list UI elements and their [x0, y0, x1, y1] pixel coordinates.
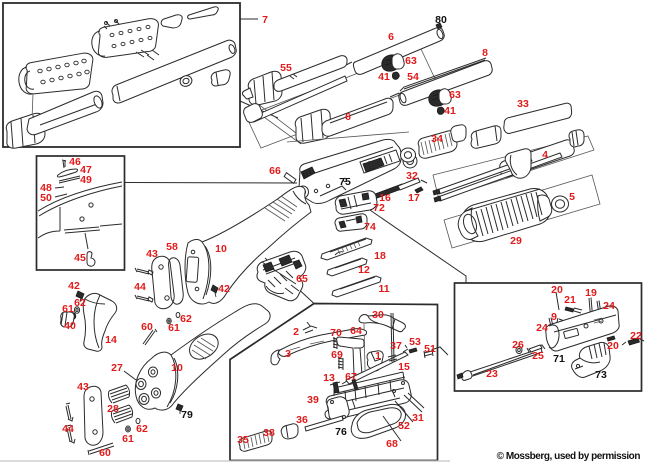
svg-text:54: 54	[407, 71, 419, 83]
svg-text:23: 23	[486, 368, 498, 380]
svg-text:28: 28	[107, 403, 119, 415]
svg-text:62: 62	[74, 297, 86, 309]
svg-text:6: 6	[345, 111, 351, 123]
svg-text:69: 69	[331, 349, 343, 361]
svg-text:20: 20	[551, 284, 563, 296]
svg-text:51: 51	[424, 343, 436, 355]
svg-text:39: 39	[307, 394, 319, 406]
svg-text:60: 60	[99, 447, 111, 459]
svg-text:15: 15	[398, 361, 410, 373]
svg-text:44: 44	[134, 281, 146, 293]
svg-text:9: 9	[551, 311, 557, 323]
svg-text:30: 30	[372, 309, 384, 321]
svg-text:5: 5	[569, 191, 575, 203]
svg-text:44: 44	[62, 423, 74, 435]
svg-text:60: 60	[141, 321, 153, 333]
svg-text:27: 27	[111, 362, 123, 374]
svg-text:63: 63	[405, 55, 417, 67]
svg-text:8: 8	[482, 47, 488, 59]
svg-text:67: 67	[345, 371, 357, 383]
svg-text:36: 36	[296, 414, 308, 426]
svg-text:70: 70	[330, 327, 342, 339]
svg-text:43: 43	[146, 248, 158, 260]
svg-text:19: 19	[585, 287, 597, 299]
svg-text:24: 24	[603, 300, 615, 312]
svg-text:11: 11	[378, 283, 389, 295]
svg-text:26: 26	[512, 339, 524, 351]
svg-text:61: 61	[122, 433, 134, 445]
svg-text:12: 12	[358, 264, 370, 276]
svg-text:75: 75	[339, 176, 351, 188]
svg-text:32: 32	[406, 170, 418, 182]
svg-text:80: 80	[435, 14, 447, 26]
svg-text:73: 73	[595, 369, 607, 381]
svg-text:17: 17	[408, 192, 420, 204]
svg-text:50: 50	[40, 192, 52, 204]
svg-text:41: 41	[378, 71, 390, 83]
svg-text:14: 14	[105, 334, 117, 346]
svg-text:64: 64	[350, 325, 362, 337]
svg-text:7: 7	[262, 14, 268, 26]
svg-text:55: 55	[280, 62, 292, 74]
svg-text:35: 35	[237, 434, 249, 446]
svg-text:79: 79	[181, 409, 193, 421]
svg-text:33: 33	[517, 98, 529, 110]
svg-text:20: 20	[607, 340, 619, 352]
svg-text:10: 10	[215, 243, 227, 255]
svg-text:76: 76	[335, 426, 347, 438]
svg-text:24: 24	[536, 322, 548, 334]
svg-text:61: 61	[168, 322, 180, 334]
svg-text:66: 66	[269, 165, 281, 177]
svg-text:58: 58	[166, 241, 178, 253]
svg-text:41: 41	[444, 105, 456, 117]
svg-text:71: 71	[553, 353, 565, 365]
svg-text:6: 6	[388, 31, 394, 43]
svg-text:38: 38	[263, 427, 275, 439]
svg-text:62: 62	[136, 423, 148, 435]
svg-text:65: 65	[296, 273, 308, 285]
svg-text:13: 13	[323, 372, 335, 384]
svg-text:42: 42	[218, 283, 230, 295]
svg-text:29: 29	[510, 235, 522, 247]
svg-text:2: 2	[293, 326, 299, 338]
svg-text:34: 34	[431, 133, 443, 145]
svg-text:68: 68	[386, 438, 398, 450]
svg-text:4: 4	[542, 149, 548, 161]
svg-text:1: 1	[375, 350, 381, 362]
svg-text:21: 21	[564, 294, 576, 306]
svg-text:10: 10	[171, 362, 183, 374]
svg-text:31: 31	[412, 412, 424, 424]
svg-text:61: 61	[62, 303, 74, 315]
svg-text:18: 18	[374, 250, 386, 262]
svg-text:37: 37	[390, 340, 402, 352]
svg-text:22: 22	[630, 330, 642, 342]
svg-text:52: 52	[398, 420, 410, 432]
svg-text:63: 63	[449, 89, 461, 101]
svg-text:45: 45	[74, 252, 86, 264]
svg-text:© Mossberg, used by permission: © Mossberg, used by permission	[497, 451, 641, 462]
svg-text:42: 42	[68, 280, 80, 292]
svg-text:43: 43	[77, 381, 89, 393]
svg-text:49: 49	[80, 174, 92, 186]
svg-text:40: 40	[64, 320, 76, 332]
svg-text:74: 74	[364, 221, 376, 233]
svg-text:25: 25	[532, 350, 544, 362]
svg-text:72: 72	[373, 202, 385, 214]
svg-text:3: 3	[285, 348, 291, 360]
svg-text:53: 53	[409, 336, 421, 348]
svg-text:62: 62	[180, 313, 192, 325]
